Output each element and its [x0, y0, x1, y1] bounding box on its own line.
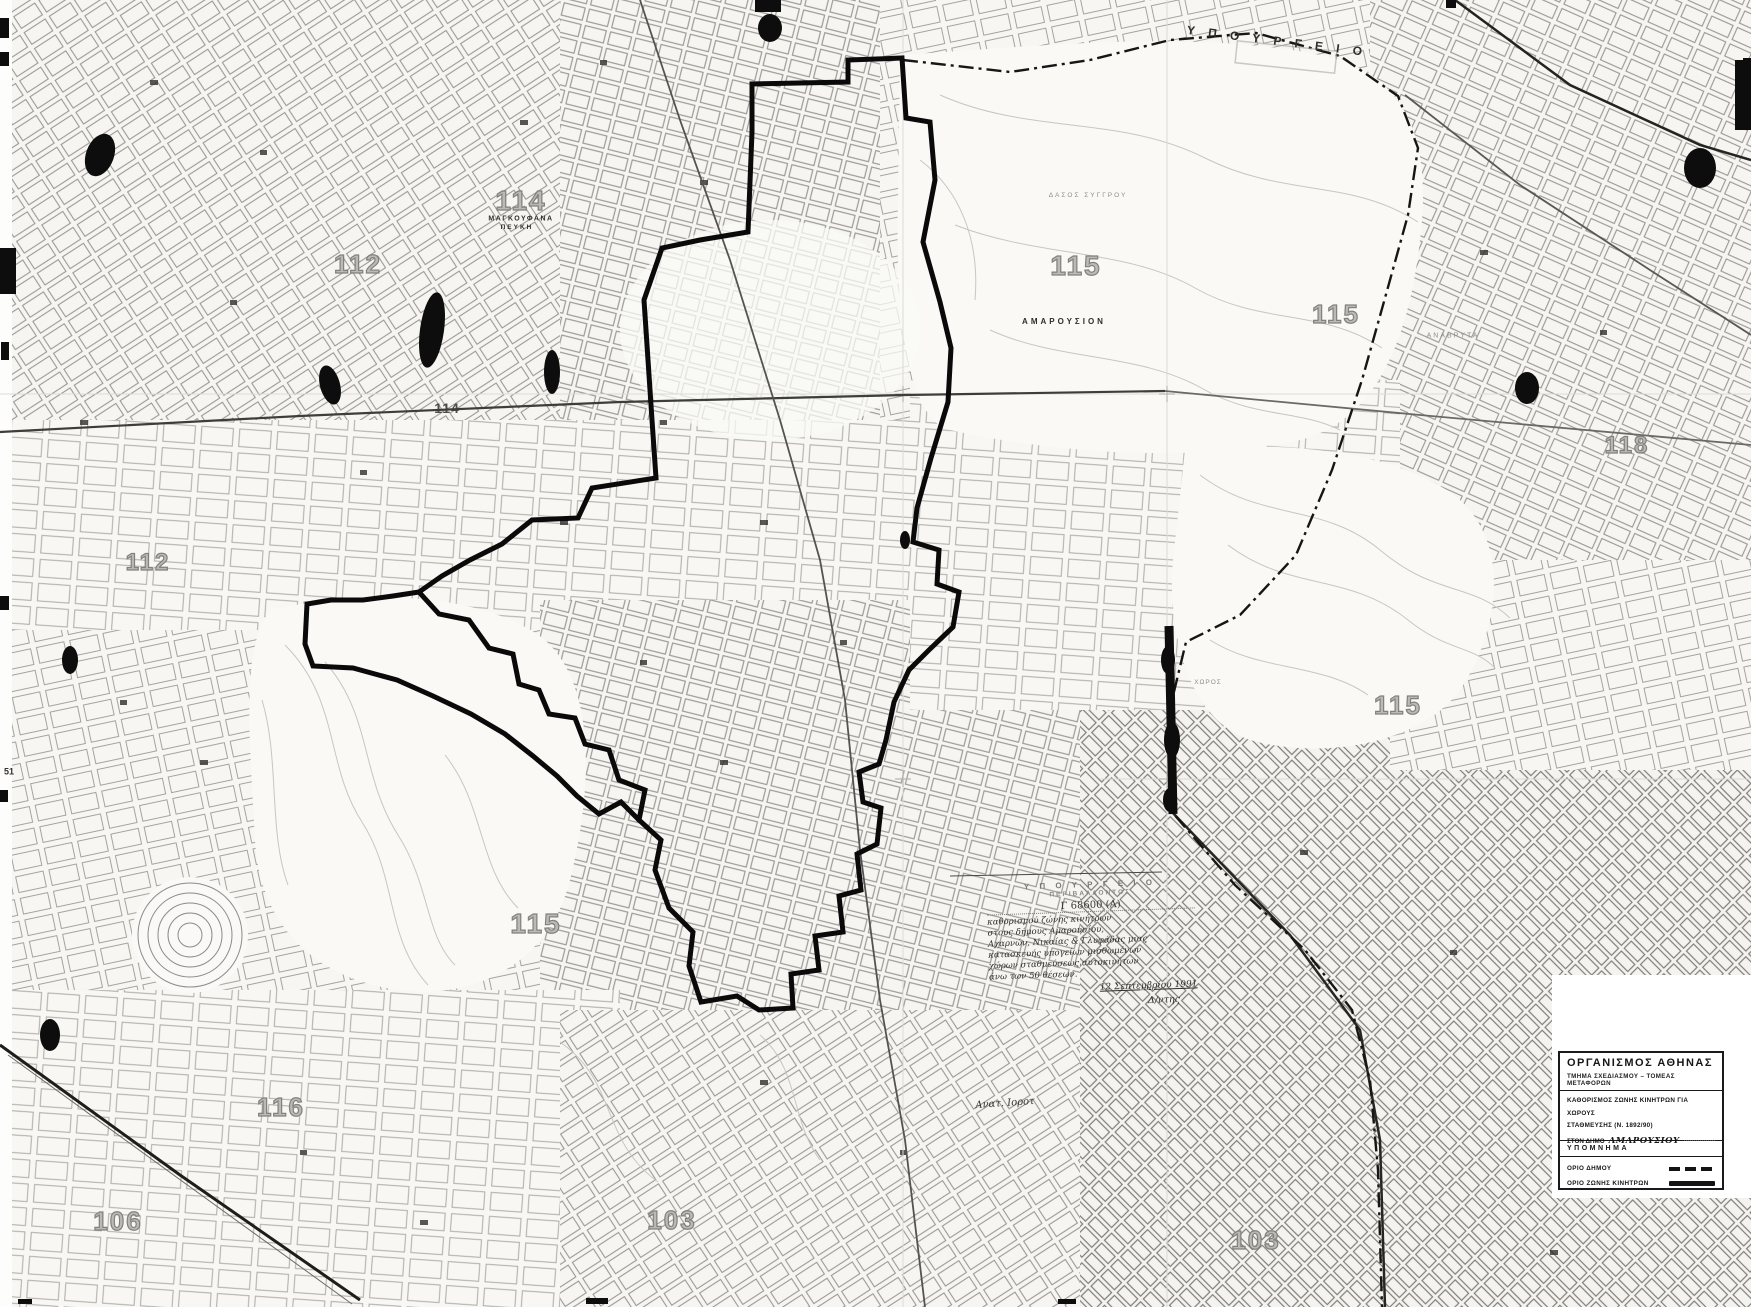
circular-plaza [132, 877, 248, 993]
legend-entries: ΟΡΙΟ ΔΗΜΟΥ ΟΡΙΟ ΖΩΝΗΣ ΚΙΝΗΤΡΩΝ [1560, 1156, 1722, 1188]
department-subtitle: ΤΜΗΜΑ ΣΧΕΔΙΑΣΜΟΥ – ΤΟΜΕΑΣ ΜΕΤΑΦΟΡΩΝ [1567, 1073, 1715, 1087]
legend-project-section: ΚΑΘΟΡΙΣΜΟΣ ΖΩΝΗΣ ΚΙΝΗΤΡΩΝ ΓΙΑ ΧΩΡΟΥΣ ΣΤΑ… [1560, 1090, 1722, 1140]
project-title-line1: ΚΑΘΟΡΙΣΜΟΣ ΖΩΝΗΣ ΚΙΝΗΤΡΩΝ ΓΙΑ ΧΩΡΟΥΣ [1567, 1095, 1715, 1120]
annotation-lines: καθορισμού ζώνης κινήτρωνστους δήμους Αμ… [987, 910, 1197, 984]
map-scan: 114112115115114118112115115116106103103 … [0, 0, 1751, 1307]
legend-entry-symbol [1669, 1181, 1715, 1186]
map-artwork [0, 0, 1751, 1307]
legend-org-section: ΟΡΓΑΝΙΣΜΟΣ ΑΘΗΝΑΣ ΤΜΗΜΑ ΣΧΕΔΙΑΣΜΟΥ – ΤΟΜ… [1560, 1053, 1722, 1090]
legend-entry: ΟΡΙΟ ΔΗΜΟΥ [1567, 1161, 1715, 1176]
dotted-rule [1684, 1140, 1715, 1141]
legend-entry-label: ΟΡΙΟ ΔΗΜΟΥ [1567, 1165, 1612, 1172]
legend-entry-label: ΟΡΙΟ ΖΩΝΗΣ ΚΙΝΗΤΡΩΝ [1567, 1180, 1649, 1187]
legend-box: ΟΡΓΑΝΙΣΜΟΣ ΑΘΗΝΑΣ ΤΜΗΜΑ ΣΧΕΔΙΑΣΜΟΥ – ΤΟΜ… [1558, 1051, 1724, 1190]
project-title-line2: ΣΤΑΘΜΕΥΣΗΣ (Ν. 1892/90) [1567, 1120, 1715, 1133]
approval-annotation: Υ Π Ο Υ Ρ Γ Ε Ι Ο ΠΕΡΙΒΑΛΛΟΝΤΟΣ Γ 68600 … [986, 876, 1198, 1011]
legend-entry-symbol [1669, 1167, 1715, 1171]
legend-entry: ΟΡΙΟ ΖΩΝΗΣ ΚΙΝΗΤΡΩΝ [1567, 1176, 1715, 1191]
organization-title: ΟΡΓΑΝΙΣΜΟΣ ΑΘΗΝΑΣ [1567, 1057, 1715, 1069]
